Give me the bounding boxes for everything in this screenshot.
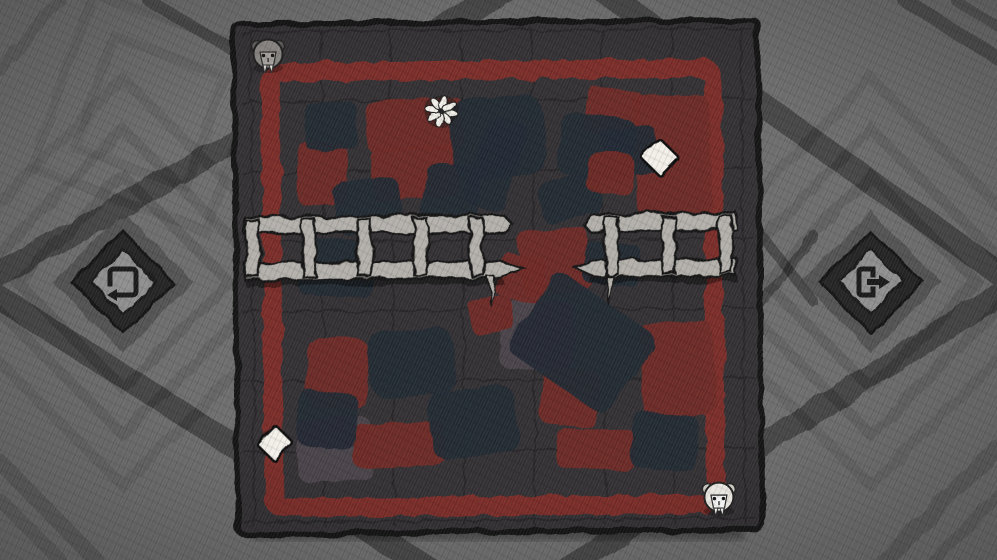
game-board: [234, 20, 762, 535]
terrain-patch-navy: [296, 390, 359, 450]
ladder-rung: [662, 216, 675, 273]
sprite-eye-left: [713, 497, 716, 500]
mural-stroke: [0, 0, 60, 70]
pinwheel-flower: [424, 94, 458, 128]
sprite-eye-right: [271, 54, 274, 57]
terrain-patch-navy: [425, 382, 522, 462]
game-stage[interactable]: [0, 0, 997, 560]
terrain-patch-red: [557, 428, 636, 470]
ladder-rung: [605, 217, 618, 274]
sprite-eye-right: [722, 497, 725, 500]
terrain-patch-red: [585, 151, 635, 195]
mural-stroke: [905, 0, 997, 58]
mural-stroke: [148, 0, 236, 52]
ladder-rung: [414, 219, 427, 276]
game-scene-canvas[interactable]: [0, 0, 997, 560]
terrain-patch-navy: [304, 100, 358, 150]
terrain-patch-navy: [366, 325, 458, 401]
sprite-eye-left: [262, 54, 265, 57]
flower-center: [439, 109, 444, 114]
terrain-patch-navy: [629, 410, 700, 474]
burrower-white: [702, 482, 735, 516]
mural-stroke: [955, 0, 997, 26]
ladder-rung: [246, 220, 259, 277]
ladder-rung: [470, 218, 483, 275]
board-group: [234, 20, 762, 535]
ladder-rung: [358, 219, 371, 276]
ladder-rail-bottom-arrow: [576, 259, 737, 277]
ladder-rung: [302, 220, 315, 277]
burrower-gray: [251, 39, 284, 73]
mural-stroke: [886, 448, 997, 560]
ladder-rung: [719, 216, 732, 273]
